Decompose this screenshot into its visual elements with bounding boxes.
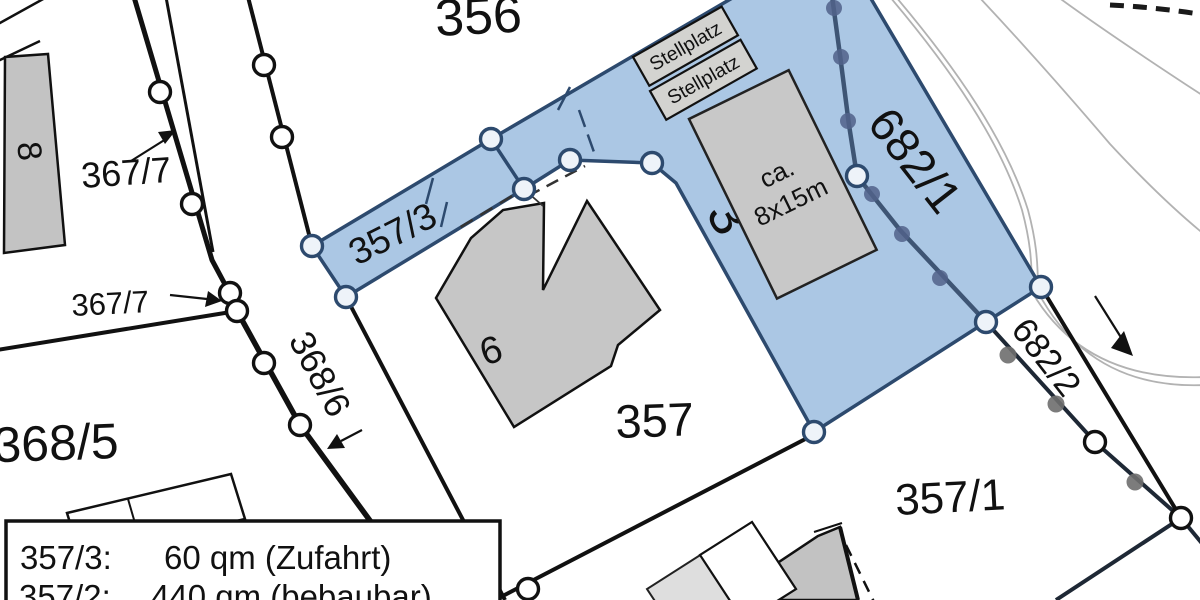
svg-text:356: 356	[434, 0, 524, 48]
svg-text:440 qm (bebaubar): 440 qm (bebaubar)	[151, 578, 432, 600]
svg-text:60 qm (Zufahrt): 60 qm (Zufahrt)	[164, 539, 391, 576]
svg-text:8: 8	[9, 140, 49, 163]
svg-text:357: 357	[614, 392, 694, 448]
svg-text:357/1: 357/1	[894, 470, 1007, 525]
svg-text:367/7: 367/7	[80, 149, 173, 196]
svg-text:357/3:: 357/3:	[20, 539, 112, 576]
svg-text:357/2:: 357/2:	[19, 578, 111, 600]
svg-text:368/5: 368/5	[0, 413, 119, 473]
svg-text:367/7: 367/7	[71, 284, 150, 323]
